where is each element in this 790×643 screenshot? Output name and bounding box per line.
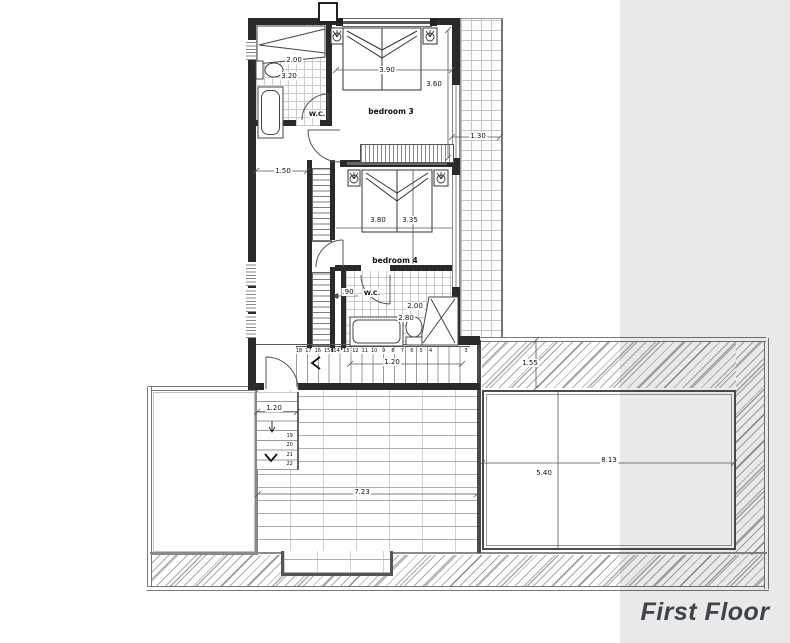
window-left-3 <box>246 288 256 312</box>
stair-number: 9 <box>382 348 386 354</box>
wall-corridor-end <box>452 336 480 345</box>
stair-number: 17 <box>305 348 312 354</box>
brick-pool-divider-wall <box>477 340 481 553</box>
dim-pool-depth: 5.40 <box>535 469 553 477</box>
room-label-bedroom4: bedroom 4 <box>371 257 418 265</box>
stair-number: 14 <box>333 348 340 354</box>
dim-pool-width: 8.13 <box>600 456 618 464</box>
stair-number: 13 <box>342 348 349 354</box>
wall-wc1-right <box>326 25 332 126</box>
dim-wc2-a: 2.00 <box>406 302 424 310</box>
window-top-strip <box>342 21 432 24</box>
stair-number: 21 <box>286 452 293 458</box>
dim-bed4-depth: 3.35 <box>401 216 419 224</box>
stair-number: 5 <box>419 348 423 354</box>
terrace-left-edge <box>147 387 152 590</box>
wc2-tile-floor <box>346 271 452 350</box>
corridor-top-line <box>256 344 480 345</box>
stair-number: 10 <box>371 348 378 354</box>
stair-number: 7 <box>400 348 404 354</box>
dim-bed3-width: 3.90 <box>378 66 396 74</box>
open-terrace-left <box>150 389 258 555</box>
corridor-step-numbers: 1817161514131211109876543 <box>299 347 474 355</box>
stair-number: 11 <box>361 348 368 354</box>
room-label-bedroom3: bedroom 3 <box>367 108 414 116</box>
wall-wc2-left <box>341 271 346 350</box>
window-right-bed4 <box>452 175 460 287</box>
stair-number: 19 <box>286 433 293 439</box>
wall-wc2-top-b <box>390 265 460 271</box>
stair-number: 4 <box>429 348 433 354</box>
window-left-2 <box>246 262 256 286</box>
side-balcony-tiles <box>460 18 503 341</box>
chimney <box>318 2 338 23</box>
stair-number: 12 <box>352 348 359 354</box>
window-left-4 <box>246 314 256 338</box>
stair-flight-lower <box>312 272 332 347</box>
wall-corridor-bottom-a <box>250 383 264 390</box>
bed3-wardrobe <box>360 144 454 163</box>
bed4 <box>348 170 448 232</box>
floor-title: First Floor <box>620 598 790 627</box>
stair-number: 20 <box>286 442 293 448</box>
terrace-step-notch <box>281 551 393 576</box>
dim-wc1-depth: 3.20 <box>280 72 298 80</box>
dim-bed4-width: 3.80 <box>369 216 387 224</box>
bed3 <box>331 28 437 90</box>
stair-number: 18 <box>295 348 302 354</box>
terrace-step-numbers: 19202122 <box>285 433 297 477</box>
dim-bed3-depth: 3.60 <box>425 80 443 88</box>
wall-stair-partition <box>307 160 312 352</box>
terrace-top-edge <box>148 386 256 391</box>
dim-terrace-stair: 1.20 <box>265 404 283 412</box>
dim-landing: 1.50 <box>274 167 292 175</box>
stair-number: 22 <box>286 461 293 467</box>
right-panel <box>620 0 790 643</box>
floor-plan: bedroom 3 bedroom 4 W.C. W.C. 2.00 3.20 … <box>0 0 790 643</box>
dim-terrace-width: 7.23 <box>353 488 371 496</box>
window-sill-right <box>430 18 437 26</box>
room-label-wc2: W.C. <box>363 289 381 297</box>
stair-number: 8 <box>391 348 395 354</box>
wall-wc2-top-a <box>335 265 361 271</box>
window-sill-left <box>336 18 343 26</box>
dim-balcony-strip: 1.30 <box>469 132 487 140</box>
wall-bed4-left-b <box>330 267 335 352</box>
stair-flight-upper <box>312 168 332 242</box>
room-label-wc1: W.C. <box>308 110 326 118</box>
stair-number: 16 <box>314 348 321 354</box>
stair-number: 15 <box>324 348 331 354</box>
wall-wc1-bottom-a <box>250 120 296 126</box>
dim-corridor: 1.20 <box>383 358 401 366</box>
dim-stair-width: .90 <box>341 288 354 296</box>
dim-wc2-b: 2.80 <box>397 314 415 322</box>
dim-roof-band: 1.55 <box>521 359 539 367</box>
wall-bed4-left-a <box>330 160 335 240</box>
stair-number: 3 <box>464 348 468 354</box>
dim-wc1-width: 2.00 <box>285 56 303 64</box>
window-left-1 <box>246 40 256 60</box>
wall-wc1-bottom-b <box>320 120 332 126</box>
wall-corridor-bottom-b <box>298 383 480 390</box>
stair-number: 6 <box>410 348 414 354</box>
